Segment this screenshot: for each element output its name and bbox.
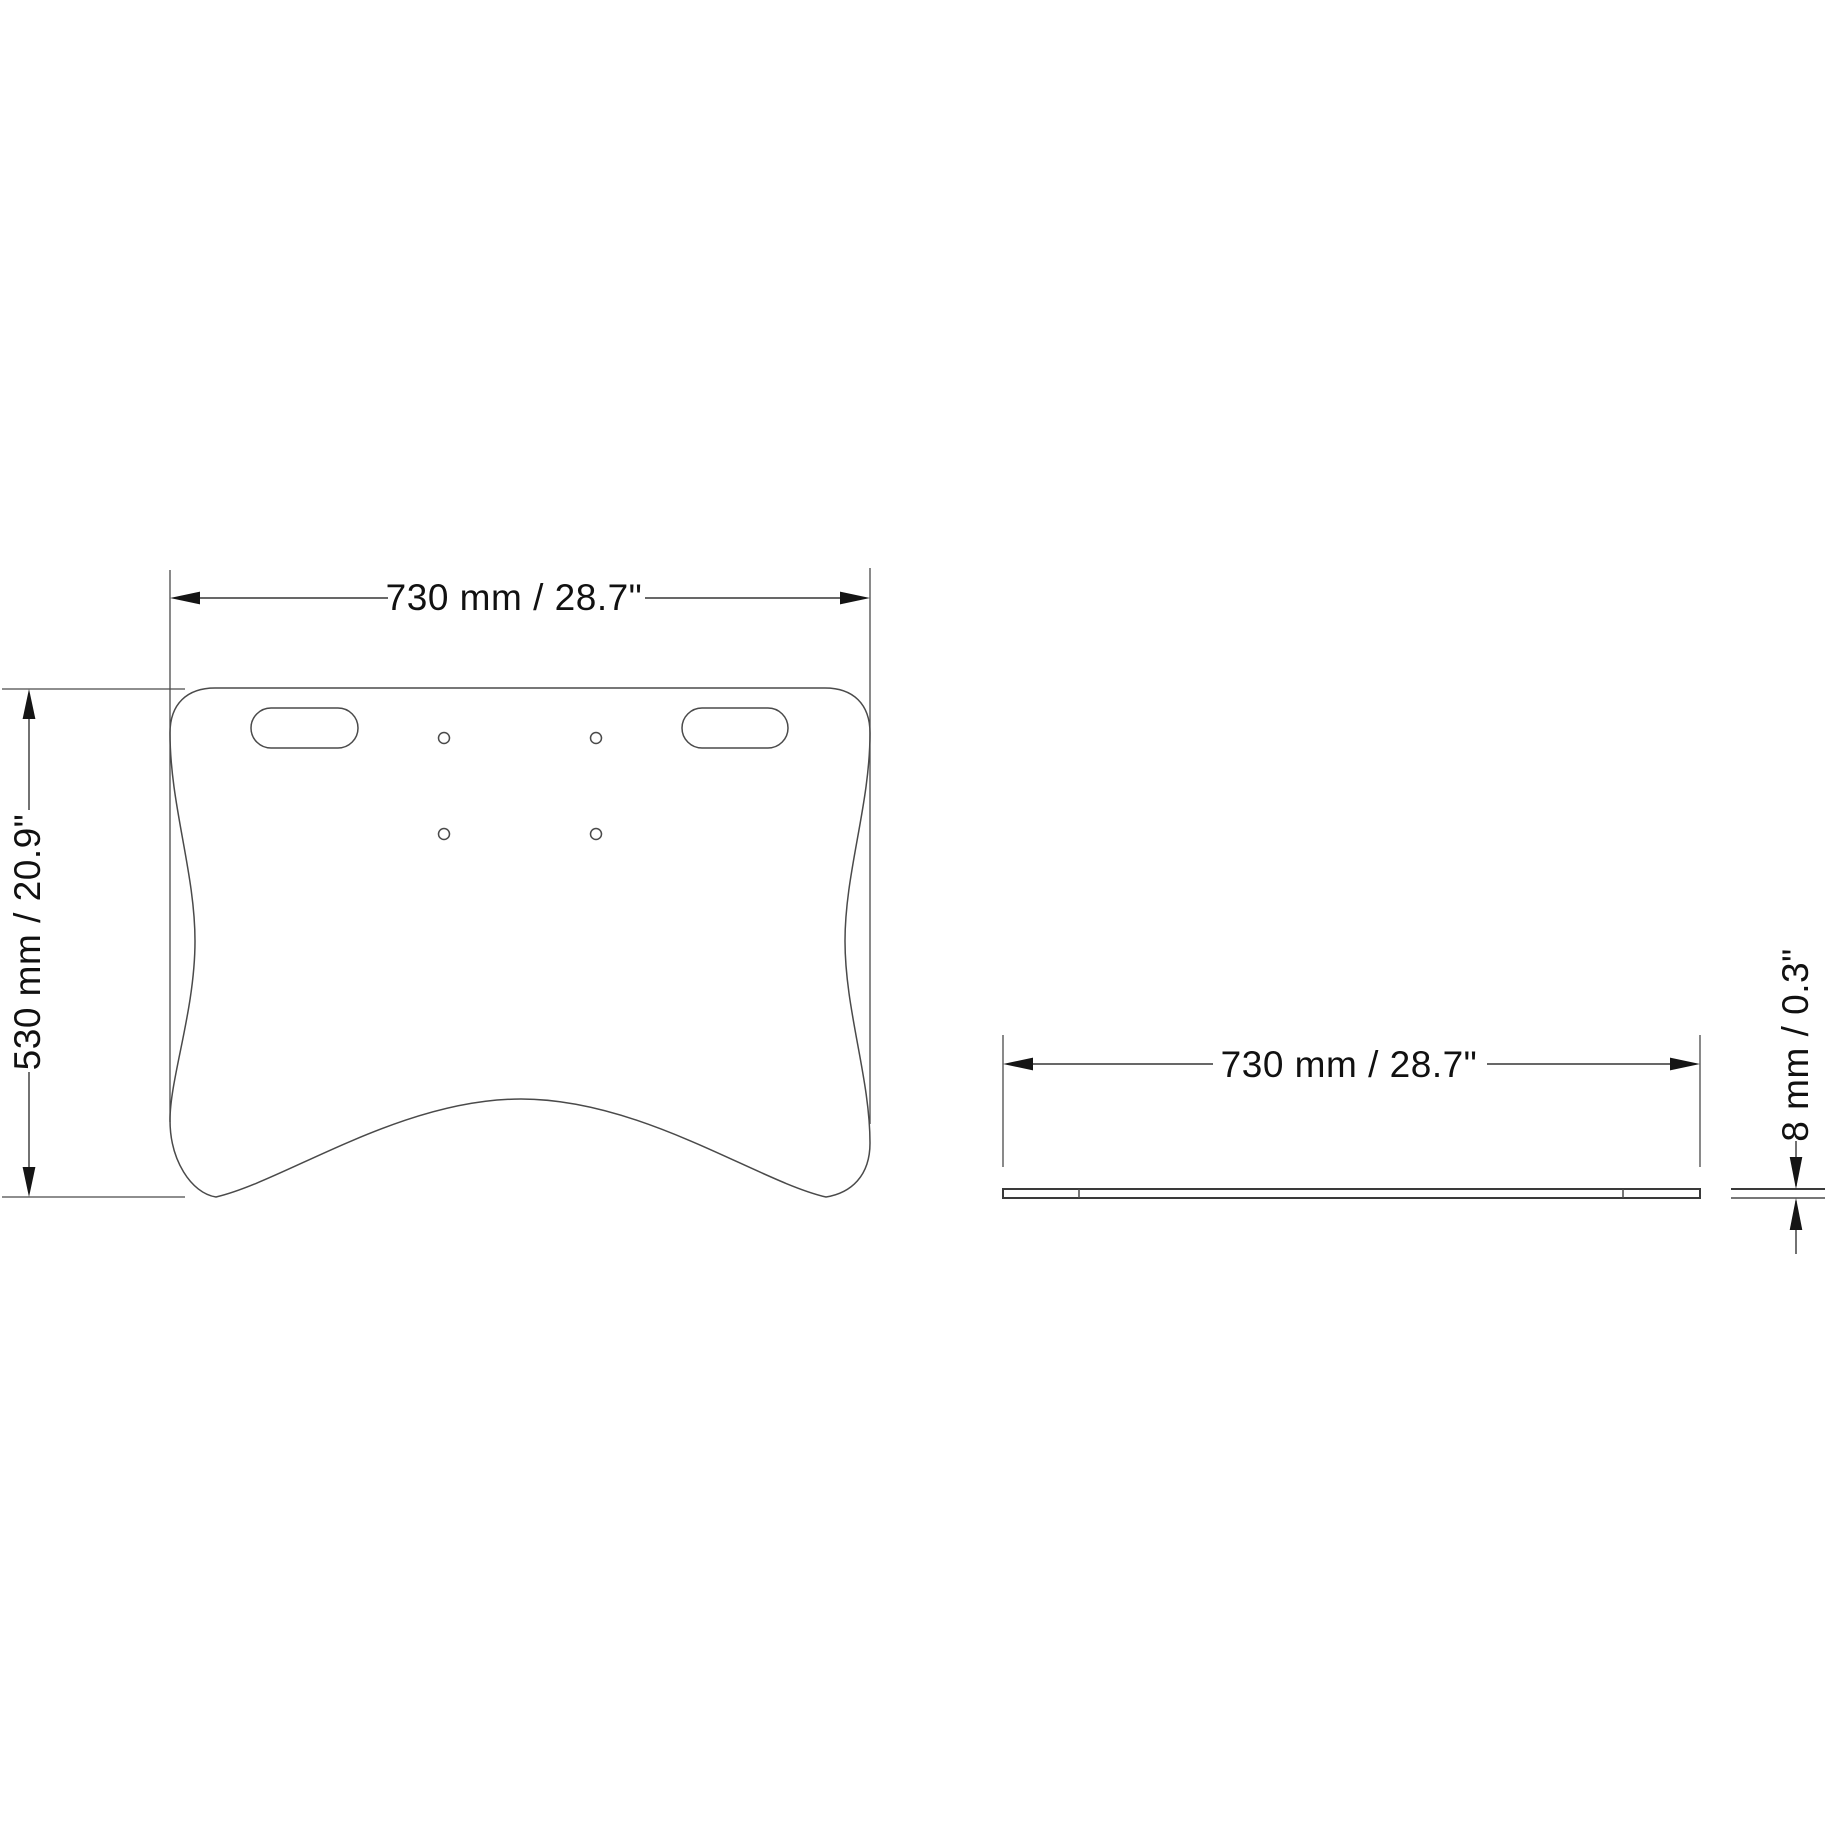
arrowhead-down-icon (23, 1167, 36, 1197)
side-width-dimension: 730 mm / 28.7" (1003, 1035, 1700, 1167)
side-thickness-dimension: 8 mm / 0.3" (1775, 948, 1816, 1254)
mounting-hole (439, 733, 450, 744)
top-view-plate-outline (170, 688, 870, 1197)
arrowhead-up-icon (1790, 1198, 1803, 1230)
top-width-label: 730 mm / 28.7" (386, 577, 643, 618)
arrowhead-right-icon (840, 592, 870, 605)
side-view: 730 mm / 28.7" 8 mm / 0.3" (1003, 948, 1825, 1254)
arrowhead-left-icon (170, 592, 200, 605)
dimension-drawing: 730 mm / 28.7" 530 mm / 20.9" (0, 0, 1827, 1827)
top-view: 730 mm / 28.7" 530 mm / 20.9" (2, 568, 870, 1197)
side-width-label: 730 mm / 28.7" (1221, 1044, 1478, 1085)
drawing-canvas: 730 mm / 28.7" 530 mm / 20.9" (0, 0, 1827, 1827)
side-view-plate-profile (1003, 1189, 1700, 1198)
mounting-hole (591, 733, 602, 744)
mounting-hole (439, 829, 450, 840)
top-width-dimension: 730 mm / 28.7" (170, 568, 870, 1124)
arrowhead-right-icon (1670, 1058, 1700, 1071)
arrowhead-left-icon (1003, 1058, 1033, 1071)
side-thickness-label: 8 mm / 0.3" (1775, 948, 1816, 1141)
side-view-profile-segment (1731, 1189, 1825, 1198)
handle-slot-right (682, 708, 788, 748)
handle-slot-left (251, 708, 358, 748)
arrowhead-up-icon (23, 689, 36, 719)
mounting-hole (591, 829, 602, 840)
arrowhead-down-icon (1790, 1157, 1803, 1189)
top-depth-label: 530 mm / 20.9" (7, 814, 48, 1071)
top-depth-dimension: 530 mm / 20.9" (2, 689, 185, 1197)
